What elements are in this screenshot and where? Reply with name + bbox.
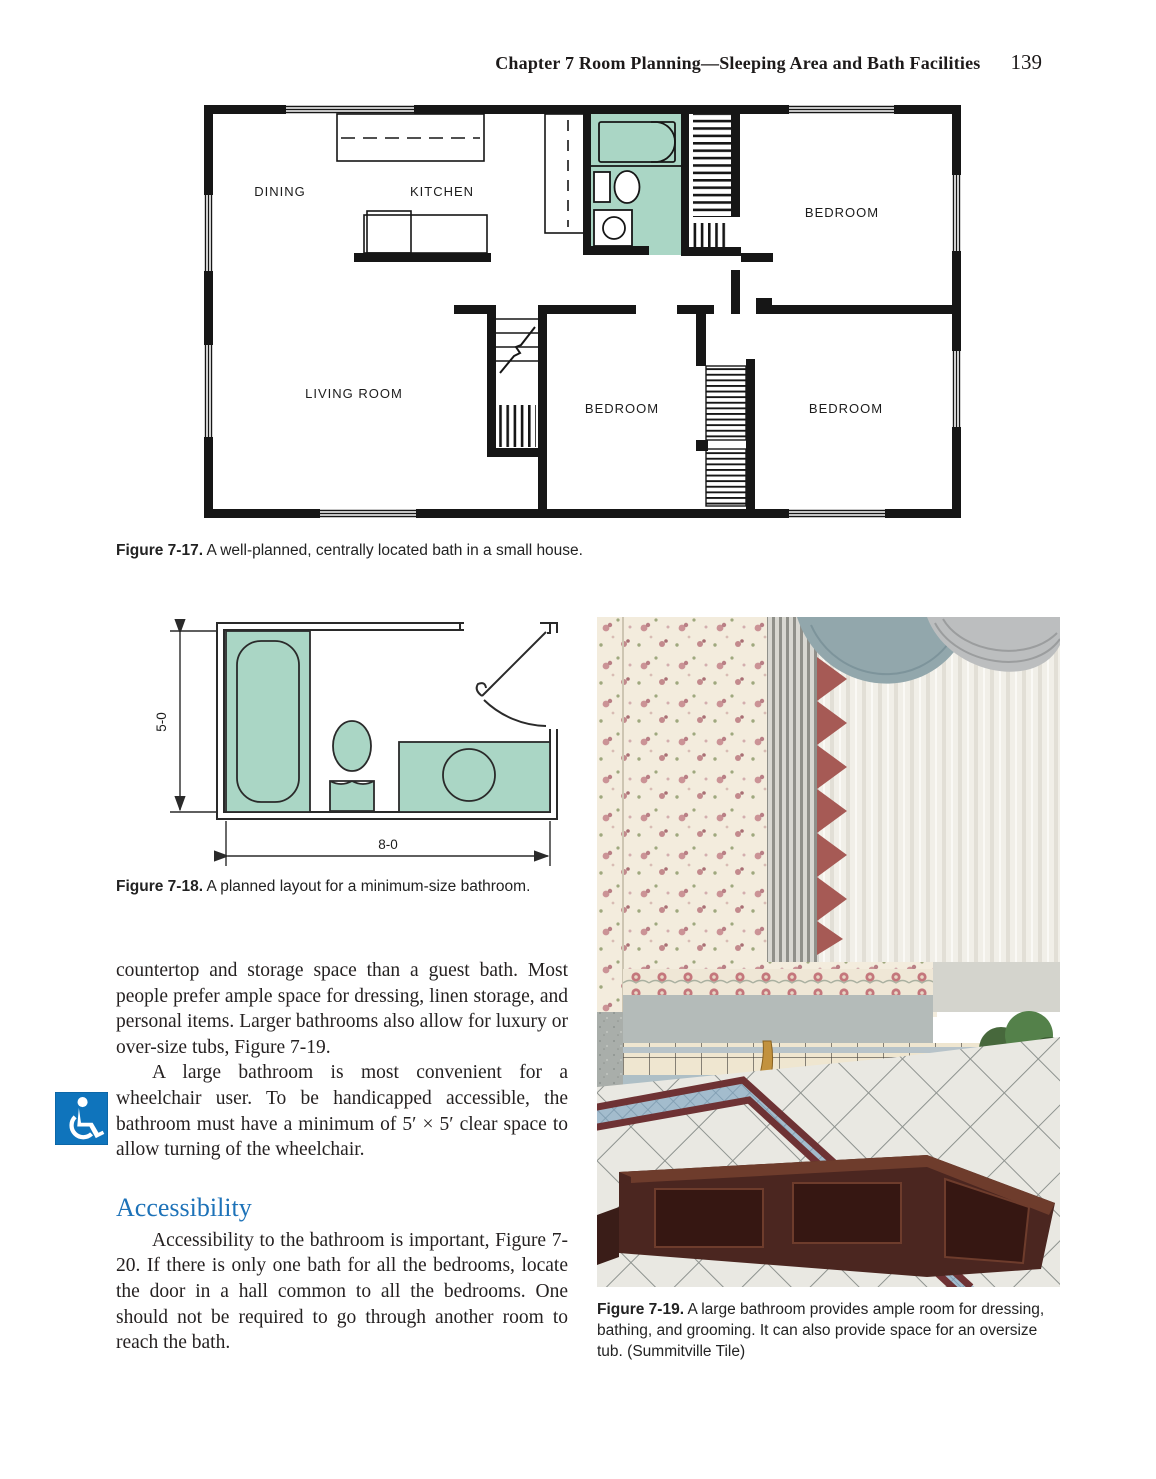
striped-drape xyxy=(767,617,819,962)
room-label-kitchen: KITCHEN xyxy=(410,184,474,199)
figure-7-17-caption-label: Figure 7-17. xyxy=(116,542,203,559)
page-header: Chapter 7 Room Planning—Sleeping Area an… xyxy=(495,50,1042,75)
body-paragraph-3: Accessibility to the bathroom is importa… xyxy=(116,1228,568,1356)
accessibility-heading: Accessibility xyxy=(116,1194,568,1222)
page-number: 139 xyxy=(1011,50,1043,75)
figure-7-17-caption-text: A well-planned, centrally located bath i… xyxy=(203,542,583,559)
figure-7-18-caption-text: A planned layout for a minimum-size bath… xyxy=(203,878,530,895)
body-paragraph-2: A large bathroom is most convenient for … xyxy=(116,1060,568,1162)
toilet-bowl xyxy=(333,721,371,771)
dim-height-label: 5-0 xyxy=(154,712,169,732)
wallpaper-border xyxy=(623,969,933,995)
room-label-bedroom-br: BEDROOM xyxy=(809,401,883,416)
bathroom-layout-figure: 5-0 8-0 xyxy=(112,608,562,870)
toilet-tank xyxy=(594,172,610,202)
floor-plan-figure: DINING KITCHEN BEDROOM LIVING ROOM BEDRO… xyxy=(204,105,961,520)
room-label-bedroom-tr: BEDROOM xyxy=(805,205,879,220)
body-text-column: countertop and storage space than a gues… xyxy=(116,958,568,1356)
figure-7-19-caption-label: Figure 7-19. xyxy=(597,1301,684,1318)
toilet-bowl xyxy=(615,171,640,203)
room-label-dining: DINING xyxy=(254,184,306,199)
textbook-page: Chapter 7 Room Planning—Sleeping Area an… xyxy=(0,0,1156,1479)
room-label-living: LIVING ROOM xyxy=(305,386,403,401)
sink xyxy=(603,217,625,239)
body-paragraph-1: countertop and storage space than a gues… xyxy=(116,958,568,1060)
room-label-bedroom-bm: BEDROOM xyxy=(585,401,659,416)
dim-width-label: 8-0 xyxy=(378,837,398,852)
accessibility-icon xyxy=(55,1092,108,1145)
figure-7-19-caption: Figure 7-19. A large bathroom provides a… xyxy=(597,1299,1059,1362)
figure-7-18-caption-label: Figure 7-18. xyxy=(116,878,203,895)
bathroom-photo xyxy=(597,617,1060,1287)
gray-band xyxy=(623,995,933,1043)
figure-7-17-caption: Figure 7-17. A well-planned, centrally l… xyxy=(116,540,876,561)
vanity xyxy=(399,742,550,812)
toilet-tank xyxy=(330,781,374,811)
chapter-title: Chapter 7 Room Planning—Sleeping Area an… xyxy=(495,53,980,74)
figure-7-18-caption: Figure 7-18. A planned layout for a mini… xyxy=(116,876,556,897)
